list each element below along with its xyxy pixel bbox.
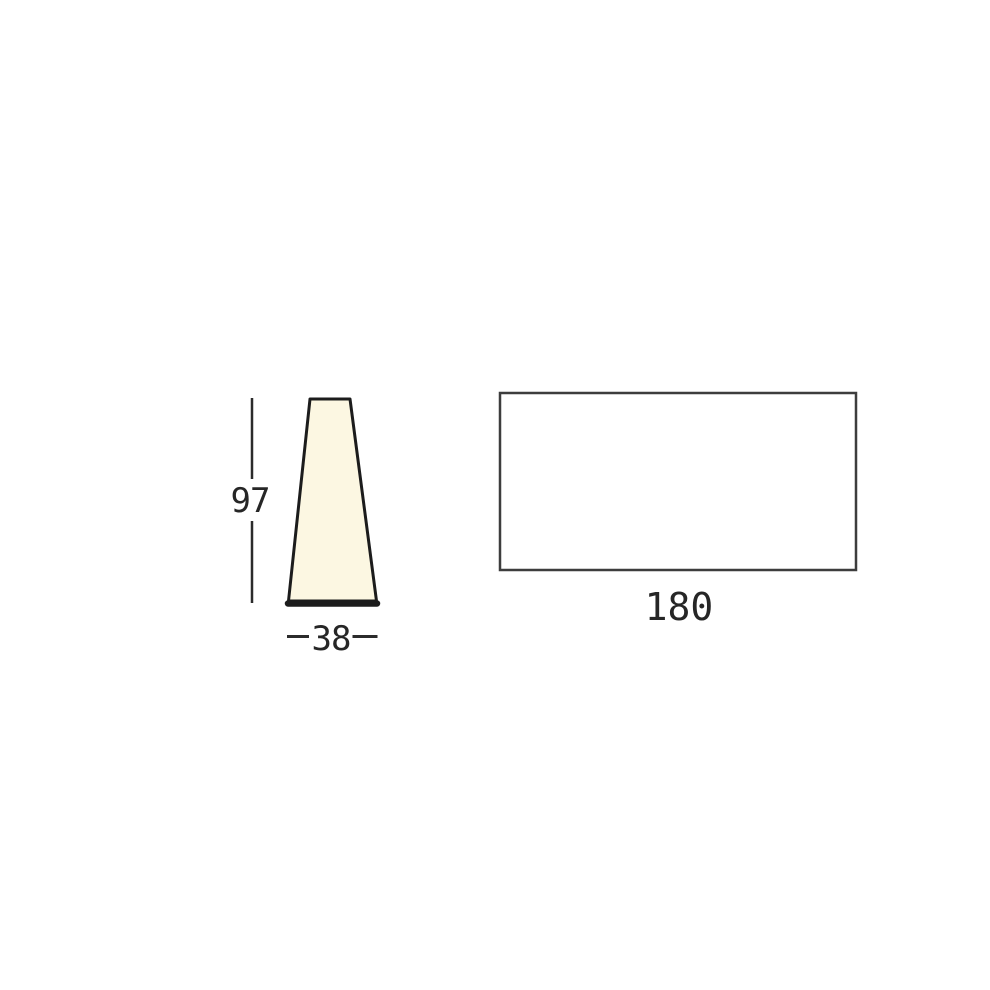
cone-shape	[289, 399, 377, 601]
diagram-canvas	[0, 0, 990, 990]
width-dimension-label: 38	[312, 622, 351, 656]
dimension-diagram: 97 38 180	[0, 0, 990, 990]
length-dimension-label: 180	[645, 588, 714, 626]
height-dimension-label: 97	[231, 484, 270, 518]
panel-shape	[500, 393, 856, 570]
